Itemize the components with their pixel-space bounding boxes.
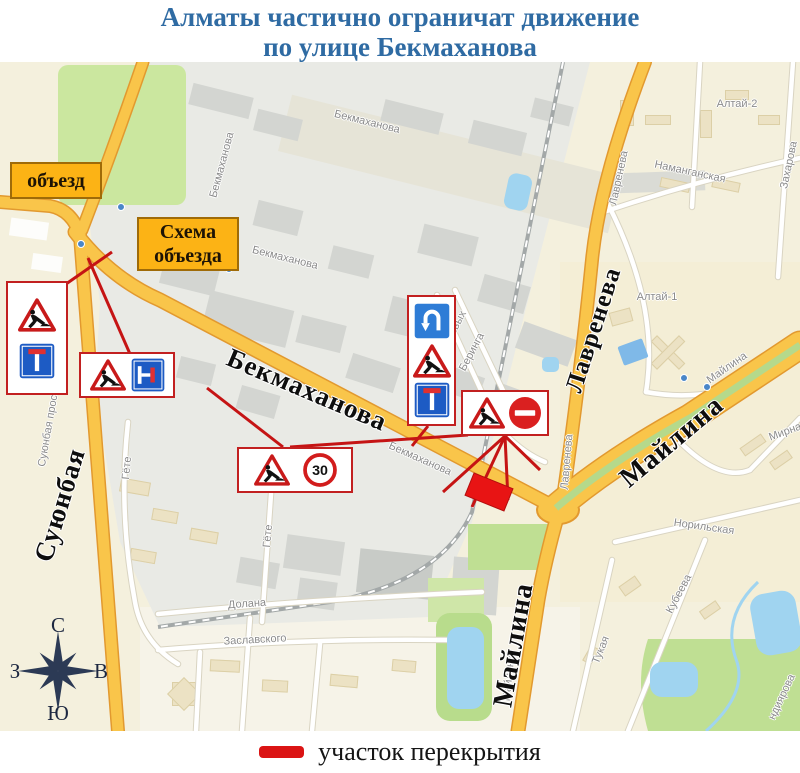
compass-west-label: З xyxy=(10,659,21,683)
leader-line xyxy=(412,426,428,446)
signs-suyunbay xyxy=(6,281,68,395)
roadworks-sign-icon xyxy=(17,297,57,333)
dead-end-sign-icon xyxy=(414,382,450,418)
roadworks-sign-icon xyxy=(253,453,291,487)
infographic-page: Алматы частично ограничат движение по ул… xyxy=(0,0,800,773)
leader-line xyxy=(505,436,540,470)
roadworks-sign-icon xyxy=(89,358,127,392)
header: Алматы частично ограничат движение по ул… xyxy=(0,0,800,62)
speed-limit-30-sign-icon: 30 xyxy=(303,453,337,487)
u-turn-sign-icon xyxy=(414,303,450,339)
page-title-line1: Алматы частично ограничат движение xyxy=(0,2,800,32)
page-title-line2: по улице Бекмаханова xyxy=(0,32,800,62)
leader-line xyxy=(66,252,112,284)
signs-speed-limit: 30 xyxy=(237,447,353,493)
compass-north-label: С xyxy=(51,614,65,637)
closure-legend-label: участок перекрытия xyxy=(318,737,541,767)
leader-line xyxy=(290,435,468,447)
signs-no-entry xyxy=(461,390,549,436)
closure-legend-swatch xyxy=(259,746,304,758)
compass-south-label: Ю xyxy=(47,701,69,725)
map[interactable]: БекмахановаБекмахановаБекмахановаБекмаха… xyxy=(0,62,800,731)
roadworks-sign-icon xyxy=(412,343,452,379)
compass-star xyxy=(18,631,98,711)
dead-end-right-sign-icon xyxy=(131,358,165,392)
compass-rose: С Ю З В xyxy=(8,614,108,726)
compass-east-label: В xyxy=(94,659,108,683)
svg-text:30: 30 xyxy=(312,463,328,479)
dead-end-sign-icon xyxy=(19,343,55,379)
leader-line xyxy=(207,388,283,447)
no-entry-sign-icon xyxy=(508,396,542,430)
legend: участок перекрытия xyxy=(0,731,800,773)
leader-line xyxy=(88,258,130,354)
signs-west xyxy=(79,352,175,398)
roadworks-sign-icon xyxy=(468,396,506,430)
signs-uturn xyxy=(407,295,456,426)
